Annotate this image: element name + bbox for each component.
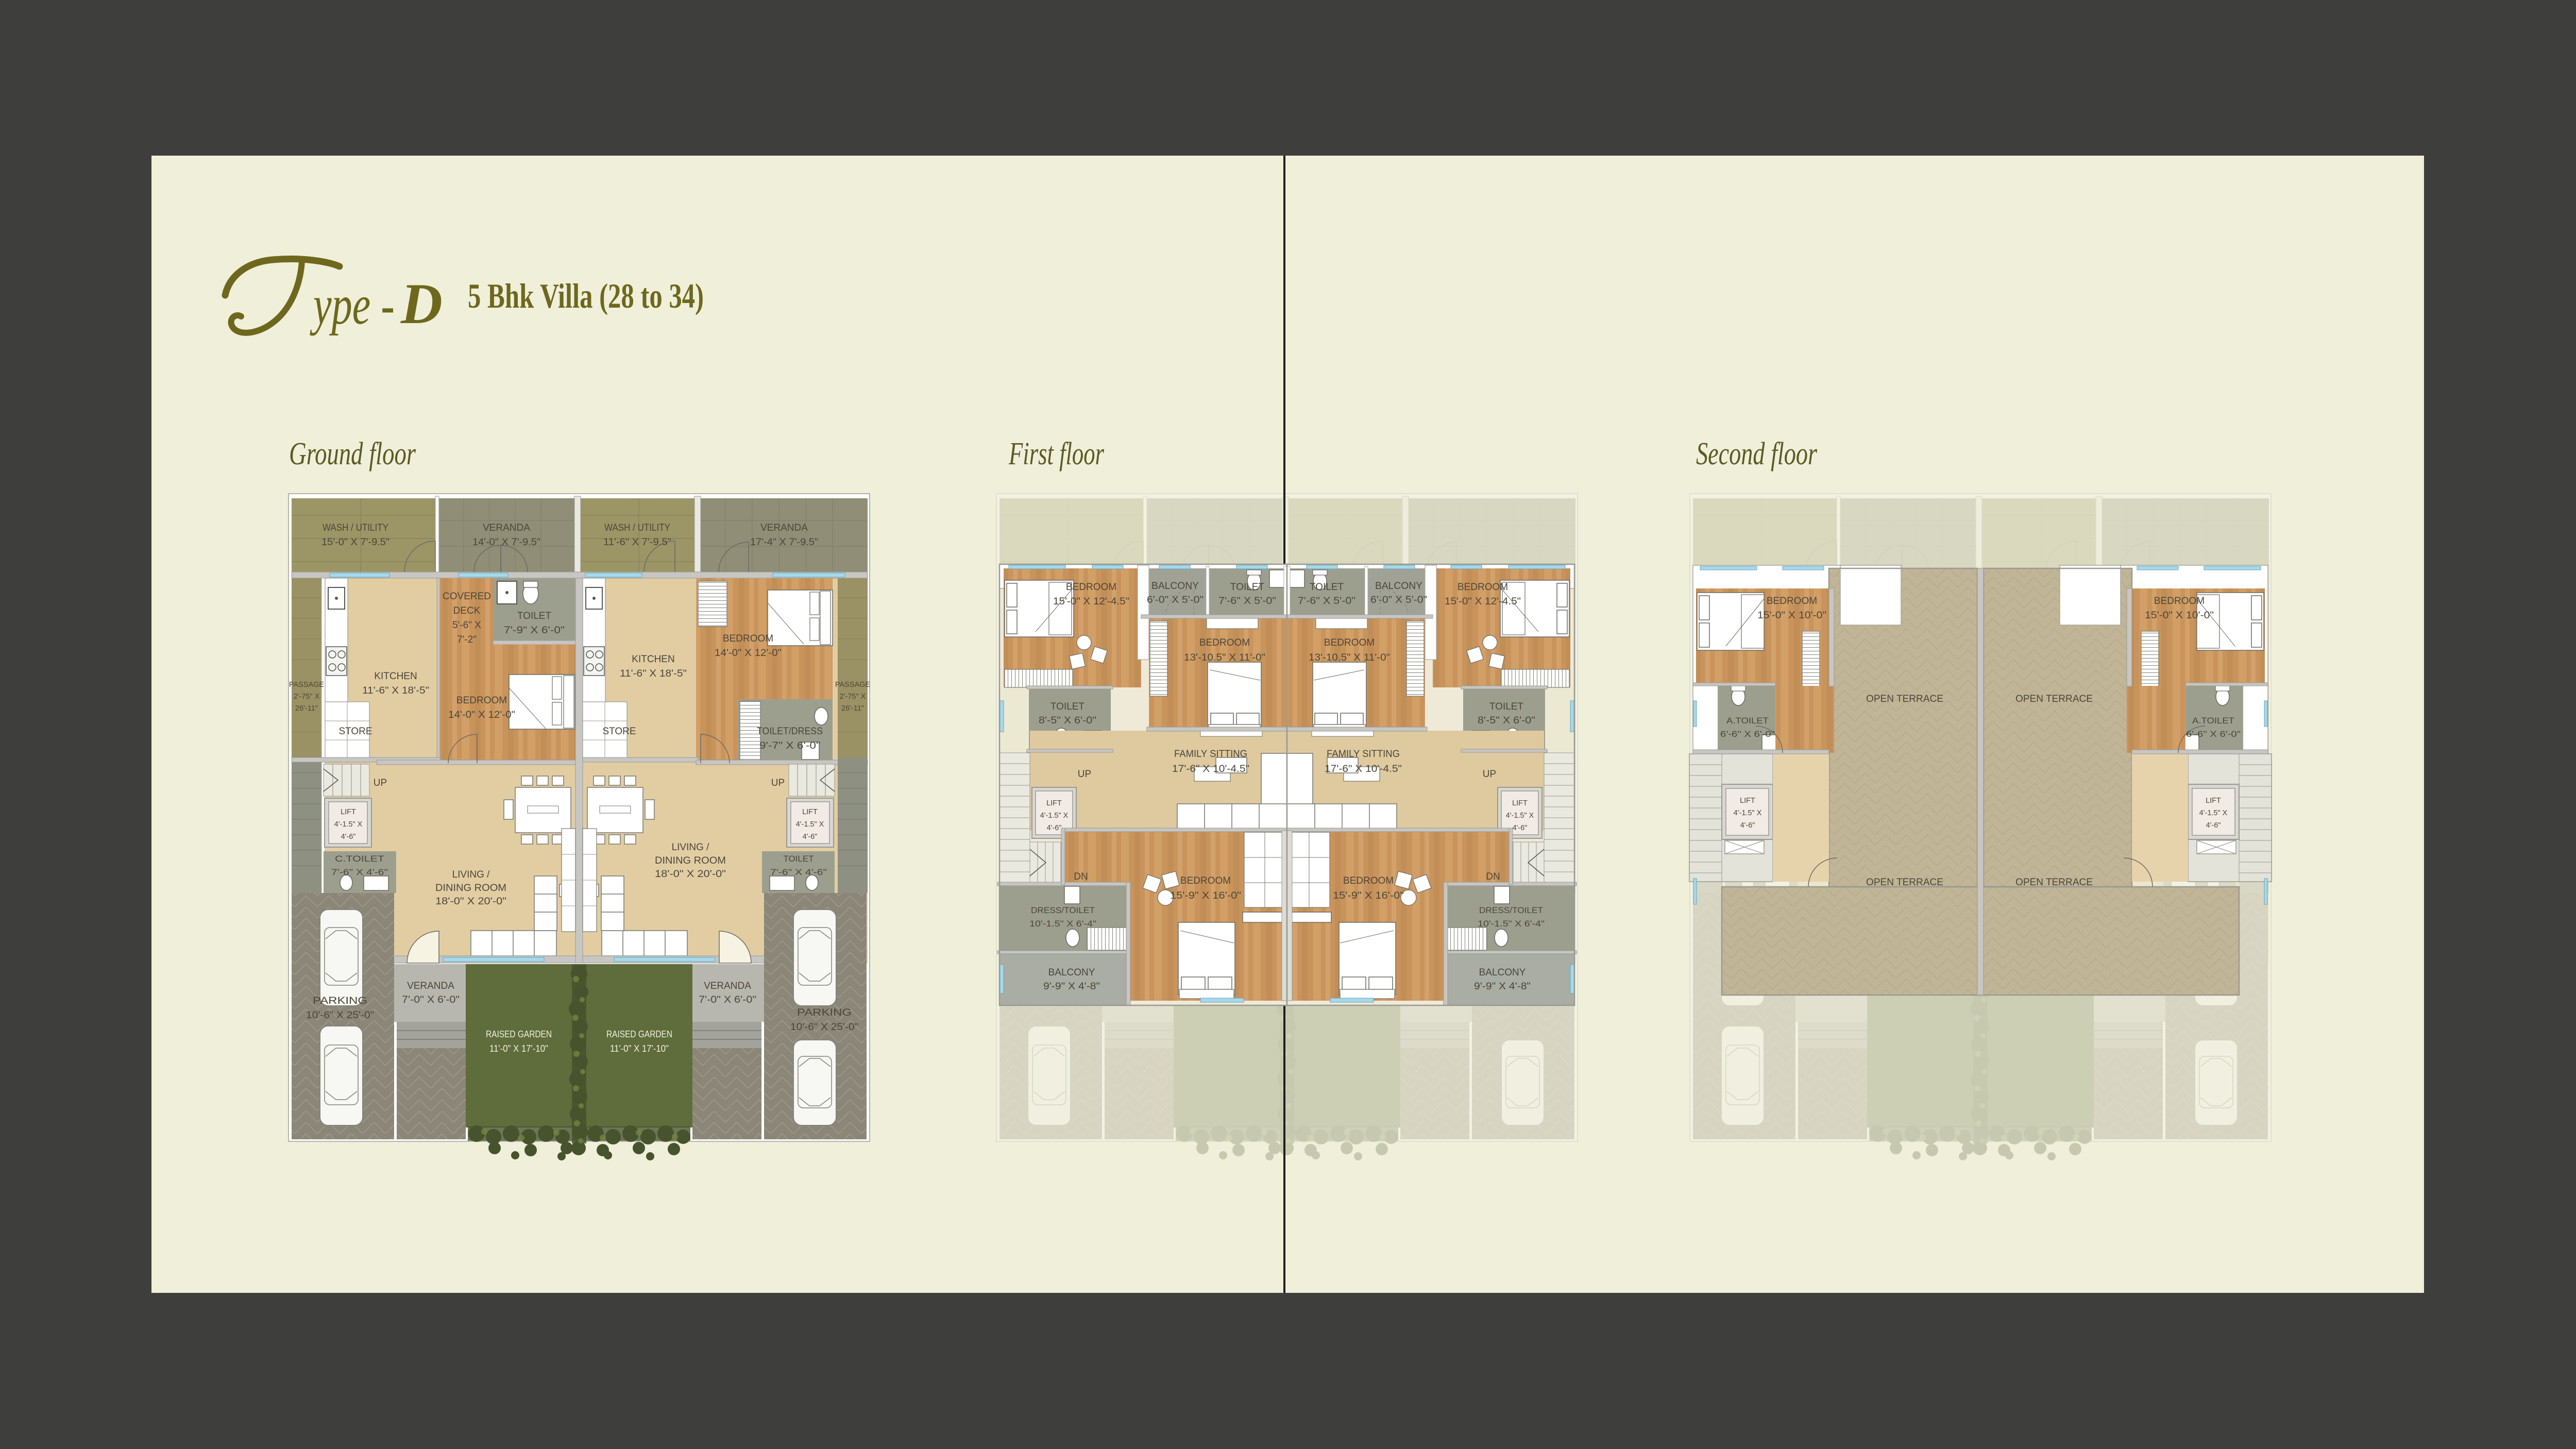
svg-text:4'-1.5" X: 4'-1.5" X xyxy=(1734,809,1762,817)
svg-text:LIVING /: LIVING / xyxy=(672,842,710,853)
svg-text:15'-0" X 10'-0": 15'-0" X 10'-0" xyxy=(2145,610,2214,621)
svg-text:LIFT: LIFT xyxy=(2206,797,2221,805)
svg-text:26'-11": 26'-11" xyxy=(295,704,318,713)
svg-text:WASH / UTILITY: WASH / UTILITY xyxy=(604,523,670,533)
svg-text:13'-10.5" X 11'-0": 13'-10.5" X 11'-0" xyxy=(1184,652,1265,663)
svg-text:6'-0" X 5'-0": 6'-0" X 5'-0" xyxy=(1370,595,1427,605)
svg-text:VERANDA: VERANDA xyxy=(760,523,808,533)
svg-text:KITCHEN: KITCHEN xyxy=(632,654,674,665)
svg-text:BALCONY: BALCONY xyxy=(1151,581,1199,592)
svg-text:PASSAGE: PASSAGE xyxy=(289,681,325,689)
svg-text:18'-0" X 20'-0": 18'-0" X 20'-0" xyxy=(655,869,726,880)
svg-text:2'-75" X: 2'-75" X xyxy=(294,693,320,701)
svg-text:OPEN TERRACE: OPEN TERRACE xyxy=(1866,694,1943,704)
svg-text:D: D xyxy=(400,272,443,336)
svg-text:BEDROOM: BEDROOM xyxy=(1343,875,1394,886)
svg-text:17'-4" X 7'-9.5": 17'-4" X 7'-9.5" xyxy=(750,537,818,548)
svg-text:PARKING: PARKING xyxy=(313,996,367,1006)
svg-text:4'-6": 4'-6" xyxy=(1513,824,1528,832)
svg-text:9'-7" X 6'-0": 9'-7" X 6'-0" xyxy=(759,740,820,751)
svg-text:9'-9" X 4'-8": 9'-9" X 4'-8" xyxy=(1043,981,1100,992)
svg-text:BEDROOM: BEDROOM xyxy=(1066,582,1116,593)
svg-text:KITCHEN: KITCHEN xyxy=(374,671,417,682)
svg-text:TOILET: TOILET xyxy=(1050,701,1085,712)
svg-text:BALCONY: BALCONY xyxy=(1479,967,1526,978)
svg-text:5'-6" X: 5'-6" X xyxy=(452,620,481,631)
svg-text:15'-9" X 16'-0": 15'-9" X 16'-0" xyxy=(1170,890,1241,901)
svg-text:BALCONY: BALCONY xyxy=(1375,581,1422,592)
svg-text:7'-6" X 4'-6": 7'-6" X 4'-6" xyxy=(331,867,388,877)
svg-text:DN: DN xyxy=(1486,871,1500,882)
svg-text:TOILET: TOILET xyxy=(783,854,814,864)
svg-text:DINING ROOM: DINING ROOM xyxy=(655,855,726,866)
svg-text:UP: UP xyxy=(771,778,785,788)
svg-text:8'-5" X 6'-0": 8'-5" X 6'-0" xyxy=(1039,715,1096,726)
svg-text:OPEN TERRACE: OPEN TERRACE xyxy=(1866,877,1943,888)
svg-text:BEDROOM: BEDROOM xyxy=(723,633,773,644)
svg-text:DECK: DECK xyxy=(453,605,481,616)
svg-text:TOILET: TOILET xyxy=(1230,582,1265,593)
svg-text:10'-1.5" X 6'-4": 10'-1.5" X 6'-4" xyxy=(1478,919,1545,929)
svg-text:7'-9" X 6'-0": 7'-9" X 6'-0" xyxy=(504,625,565,636)
svg-text:4'-1.5" X: 4'-1.5" X xyxy=(796,820,824,829)
svg-text:DN: DN xyxy=(1074,871,1088,882)
svg-text:10'-6" X 25'-0": 10'-6" X 25'-0" xyxy=(790,1022,858,1033)
svg-text:4'-1.5" X: 4'-1.5" X xyxy=(334,820,363,829)
svg-text:17'-6" X 10'-4.5": 17'-6" X 10'-4.5" xyxy=(1172,764,1249,774)
svg-text:18'-0" X 20'-0": 18'-0" X 20'-0" xyxy=(435,896,506,907)
svg-text:15'-0" X 12'-4.5": 15'-0" X 12'-4.5" xyxy=(1053,596,1129,607)
svg-text:UP: UP xyxy=(1483,769,1496,780)
svg-text:15'-0" X 7'-9.5": 15'-0" X 7'-9.5" xyxy=(321,537,389,548)
svg-text:6'-6" X 6'-0": 6'-6" X 6'-0" xyxy=(2186,729,2241,739)
svg-text:5 Bhk Villa (28 to 34): 5 Bhk Villa (28 to 34) xyxy=(468,276,704,315)
svg-text:A.TOILET: A.TOILET xyxy=(1726,716,1769,726)
svg-text:ype -: ype - xyxy=(310,275,395,336)
svg-text:4'-1.5" X: 4'-1.5" X xyxy=(2199,809,2228,817)
svg-text:OPEN TERRACE: OPEN TERRACE xyxy=(2015,877,2093,888)
svg-text:LIFT: LIFT xyxy=(1512,799,1528,807)
svg-text:11'-0" X 17'-10": 11'-0" X 17'-10" xyxy=(489,1043,548,1054)
svg-text:OPEN TERRACE: OPEN TERRACE xyxy=(2015,694,2093,704)
svg-text:VERANDA: VERANDA xyxy=(483,523,530,533)
svg-text:UP: UP xyxy=(1078,769,1091,780)
svg-text:7'-0" X 6'-0": 7'-0" X 6'-0" xyxy=(699,995,756,1005)
svg-text:4'-6": 4'-6" xyxy=(1740,821,1755,830)
svg-text:8'-5" X 6'-0": 8'-5" X 6'-0" xyxy=(1478,715,1535,726)
svg-text:17'-6" X 10'-4.5": 17'-6" X 10'-4.5" xyxy=(1325,764,1402,774)
svg-text:7'-6" X 5'-0": 7'-6" X 5'-0" xyxy=(1298,596,1355,606)
svg-text:LIFT: LIFT xyxy=(1740,797,1755,805)
svg-text:TOILET: TOILET xyxy=(517,611,552,621)
svg-text:11'-6" X 18'-5": 11'-6" X 18'-5" xyxy=(620,668,687,679)
svg-text:15'-0" X 10'-0": 15'-0" X 10'-0" xyxy=(1757,610,1826,621)
svg-text:6'-0" X 5'-0": 6'-0" X 5'-0" xyxy=(1147,595,1204,605)
svg-text:BEDROOM: BEDROOM xyxy=(1324,637,1375,648)
svg-text:26'-11": 26'-11" xyxy=(841,704,864,713)
svg-text:DRESS/TOILET: DRESS/TOILET xyxy=(1031,905,1095,915)
svg-text:14'-0" X 7'-9.5": 14'-0" X 7'-9.5" xyxy=(472,537,540,548)
svg-text:WASH / UTILITY: WASH / UTILITY xyxy=(323,523,388,533)
svg-text:PASSAGE: PASSAGE xyxy=(835,681,871,689)
svg-text:FAMILY SITTING: FAMILY SITTING xyxy=(1327,749,1400,760)
svg-text:4'-6": 4'-6" xyxy=(803,833,818,841)
svg-text:11'-0" X 17'-10": 11'-0" X 17'-10" xyxy=(610,1043,669,1054)
svg-text:VERANDA: VERANDA xyxy=(704,981,751,991)
svg-text:2'-75" X: 2'-75" X xyxy=(840,693,866,701)
svg-text:VERANDA: VERANDA xyxy=(407,981,454,991)
svg-text:7'-2": 7'-2" xyxy=(457,634,477,645)
svg-text:4'-1.5" X: 4'-1.5" X xyxy=(1506,812,1534,820)
svg-text:6'-6" X 6'-0": 6'-6" X 6'-0" xyxy=(1720,729,1775,739)
svg-text:UP: UP xyxy=(374,778,387,788)
svg-text:BEDROOM: BEDROOM xyxy=(456,695,507,706)
svg-text:4'-6": 4'-6" xyxy=(1047,824,1062,832)
svg-text:A.TOILET: A.TOILET xyxy=(2192,716,2234,726)
svg-text:C.TOILET: C.TOILET xyxy=(335,854,384,864)
svg-text:4'-1.5" X: 4'-1.5" X xyxy=(1040,812,1069,820)
svg-text:Second floor: Second floor xyxy=(1696,436,1818,471)
svg-text:FAMILY SITTING: FAMILY SITTING xyxy=(1174,749,1247,760)
svg-text:BEDROOM: BEDROOM xyxy=(1767,596,1817,606)
svg-text:7'-0" X 6'-0": 7'-0" X 6'-0" xyxy=(402,995,460,1005)
svg-text:LIFT: LIFT xyxy=(1046,799,1062,807)
svg-text:10'-1.5" X 6'-4": 10'-1.5" X 6'-4" xyxy=(1029,919,1096,929)
svg-text:RAISED GARDEN: RAISED GARDEN xyxy=(606,1029,672,1039)
svg-text:First floor: First floor xyxy=(1008,436,1104,471)
svg-text:4'-6": 4'-6" xyxy=(2206,821,2221,830)
svg-text:BEDROOM: BEDROOM xyxy=(1180,875,1231,886)
svg-text:TOILET/DRESS: TOILET/DRESS xyxy=(757,726,823,737)
svg-text:STORE: STORE xyxy=(338,726,372,737)
svg-text:Ground floor: Ground floor xyxy=(289,436,416,471)
svg-text:15'-9" X 16'-0": 15'-9" X 16'-0" xyxy=(1333,890,1404,901)
svg-text:LIVING /: LIVING / xyxy=(452,869,490,880)
svg-text:STORE: STORE xyxy=(602,726,636,737)
svg-text:11'-6" X 7'-9.5": 11'-6" X 7'-9.5" xyxy=(603,537,671,548)
svg-text:LIFT: LIFT xyxy=(802,808,818,816)
svg-text:11'-6" X 18'-5": 11'-6" X 18'-5" xyxy=(362,685,429,696)
svg-text:COVERED: COVERED xyxy=(443,591,491,602)
svg-text:BEDROOM: BEDROOM xyxy=(1199,637,1250,648)
svg-text:14'-0" X 12'-0": 14'-0" X 12'-0" xyxy=(715,648,782,659)
svg-text:15'-0" X 12'-4.5": 15'-0" X 12'-4.5" xyxy=(1445,596,1521,607)
svg-text:DINING ROOM: DINING ROOM xyxy=(435,883,506,894)
svg-text:13'-10.5" X 11'-0": 13'-10.5" X 11'-0" xyxy=(1309,652,1390,663)
svg-text:TOILET: TOILET xyxy=(1310,582,1344,593)
svg-text:7'-6" X 4'-6": 7'-6" X 4'-6" xyxy=(770,867,827,877)
svg-text:DRESS/TOILET: DRESS/TOILET xyxy=(1479,905,1543,915)
svg-text:BEDROOM: BEDROOM xyxy=(1458,582,1508,593)
svg-text:4'-6": 4'-6" xyxy=(341,833,356,841)
svg-text:TOILET: TOILET xyxy=(1489,701,1524,712)
svg-text:BALCONY: BALCONY xyxy=(1048,967,1095,978)
svg-text:PARKING: PARKING xyxy=(797,1007,852,1018)
svg-text:LIFT: LIFT xyxy=(341,808,356,816)
svg-text:7'-6" X 5'-0": 7'-6" X 5'-0" xyxy=(1218,596,1276,606)
svg-text:14'-0" X 12'-0": 14'-0" X 12'-0" xyxy=(448,710,515,720)
svg-text:9'-9" X 4'-8": 9'-9" X 4'-8" xyxy=(1474,981,1531,992)
svg-text:BEDROOM: BEDROOM xyxy=(2154,596,2205,606)
svg-text:RAISED GARDEN: RAISED GARDEN xyxy=(486,1029,552,1039)
svg-text:10'-6" X 25'-0": 10'-6" X 25'-0" xyxy=(306,1010,374,1021)
